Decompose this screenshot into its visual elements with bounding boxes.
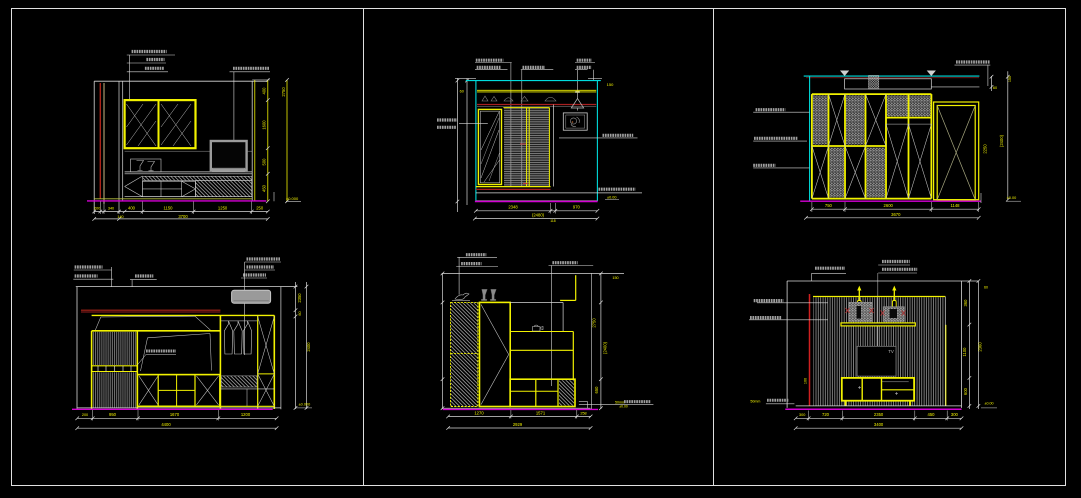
svg-text:500: 500 <box>262 158 267 166</box>
svg-text:3700: 3700 <box>178 214 188 219</box>
svg-text:2350: 2350 <box>297 293 302 303</box>
svg-text:300: 300 <box>799 413 805 417</box>
svg-text:60: 60 <box>993 86 997 90</box>
svg-text:60: 60 <box>984 286 988 290</box>
svg-text:1670: 1670 <box>170 412 180 417</box>
svg-text:±0.00: ±0.00 <box>607 196 616 200</box>
svg-text:720: 720 <box>822 412 830 417</box>
svg-text:3400: 3400 <box>874 422 884 427</box>
svg-text:150: 150 <box>1008 76 1012 82</box>
svg-text:400: 400 <box>128 205 136 210</box>
svg-text:200: 200 <box>82 413 88 417</box>
svg-text:750: 750 <box>825 203 833 208</box>
svg-text:2400: 2400 <box>306 342 311 352</box>
svg-text:970: 970 <box>573 205 581 210</box>
svg-text:60: 60 <box>298 311 302 315</box>
svg-text:1148: 1148 <box>950 203 960 208</box>
svg-text:(2400): (2400) <box>603 341 608 354</box>
svg-text:600: 600 <box>963 387 968 395</box>
svg-text:200: 200 <box>94 206 100 210</box>
svg-text:±0.00: ±0.00 <box>1007 196 1016 200</box>
svg-text:(2480): (2480) <box>532 213 545 218</box>
svg-text:1100: 1100 <box>962 347 967 357</box>
svg-text:340: 340 <box>108 206 114 210</box>
svg-text:3670: 3670 <box>891 212 901 217</box>
svg-text:±0.00: ±0.00 <box>985 401 994 405</box>
svg-text:150: 150 <box>607 82 614 87</box>
svg-text:2929: 2929 <box>513 422 523 427</box>
svg-text:250: 250 <box>256 205 264 210</box>
svg-text:4400: 4400 <box>161 422 171 427</box>
svg-text:650: 650 <box>594 386 599 394</box>
svg-text:1571: 1571 <box>536 410 546 415</box>
svg-text:400: 400 <box>262 87 267 95</box>
svg-text:450: 450 <box>262 184 267 192</box>
svg-text:2750: 2750 <box>281 87 286 97</box>
svg-text:±0.00: ±0.00 <box>619 405 628 409</box>
svg-text:300: 300 <box>951 412 959 417</box>
svg-text:450: 450 <box>928 412 936 417</box>
svg-text:50mm: 50mm <box>750 400 760 404</box>
svg-text:1270: 1270 <box>474 410 484 415</box>
svg-text:1150: 1150 <box>163 205 173 210</box>
svg-text:TV: TV <box>888 349 894 354</box>
svg-text:1200: 1200 <box>241 412 251 417</box>
svg-text:2750: 2750 <box>592 318 597 328</box>
svg-text:60: 60 <box>460 90 464 94</box>
svg-text:118: 118 <box>550 219 556 223</box>
svg-text:1600: 1600 <box>262 120 267 130</box>
svg-text:258: 258 <box>580 411 586 415</box>
svg-text:360: 360 <box>963 299 968 307</box>
svg-text:2250: 2250 <box>983 144 988 154</box>
svg-text:2350: 2350 <box>874 412 884 417</box>
svg-text:950: 950 <box>109 412 117 417</box>
svg-text:150: 150 <box>612 276 618 280</box>
svg-text:(2400): (2400) <box>999 134 1004 147</box>
svg-text:2360: 2360 <box>978 342 983 352</box>
svg-text:1250: 1250 <box>218 205 228 210</box>
svg-text:2600: 2600 <box>884 203 894 208</box>
svg-text:±0.000: ±0.000 <box>286 196 299 201</box>
svg-text:100: 100 <box>804 378 808 384</box>
svg-text:±0.000: ±0.000 <box>299 403 311 407</box>
svg-text:2348: 2348 <box>508 205 518 210</box>
svg-text:140: 140 <box>117 215 123 219</box>
